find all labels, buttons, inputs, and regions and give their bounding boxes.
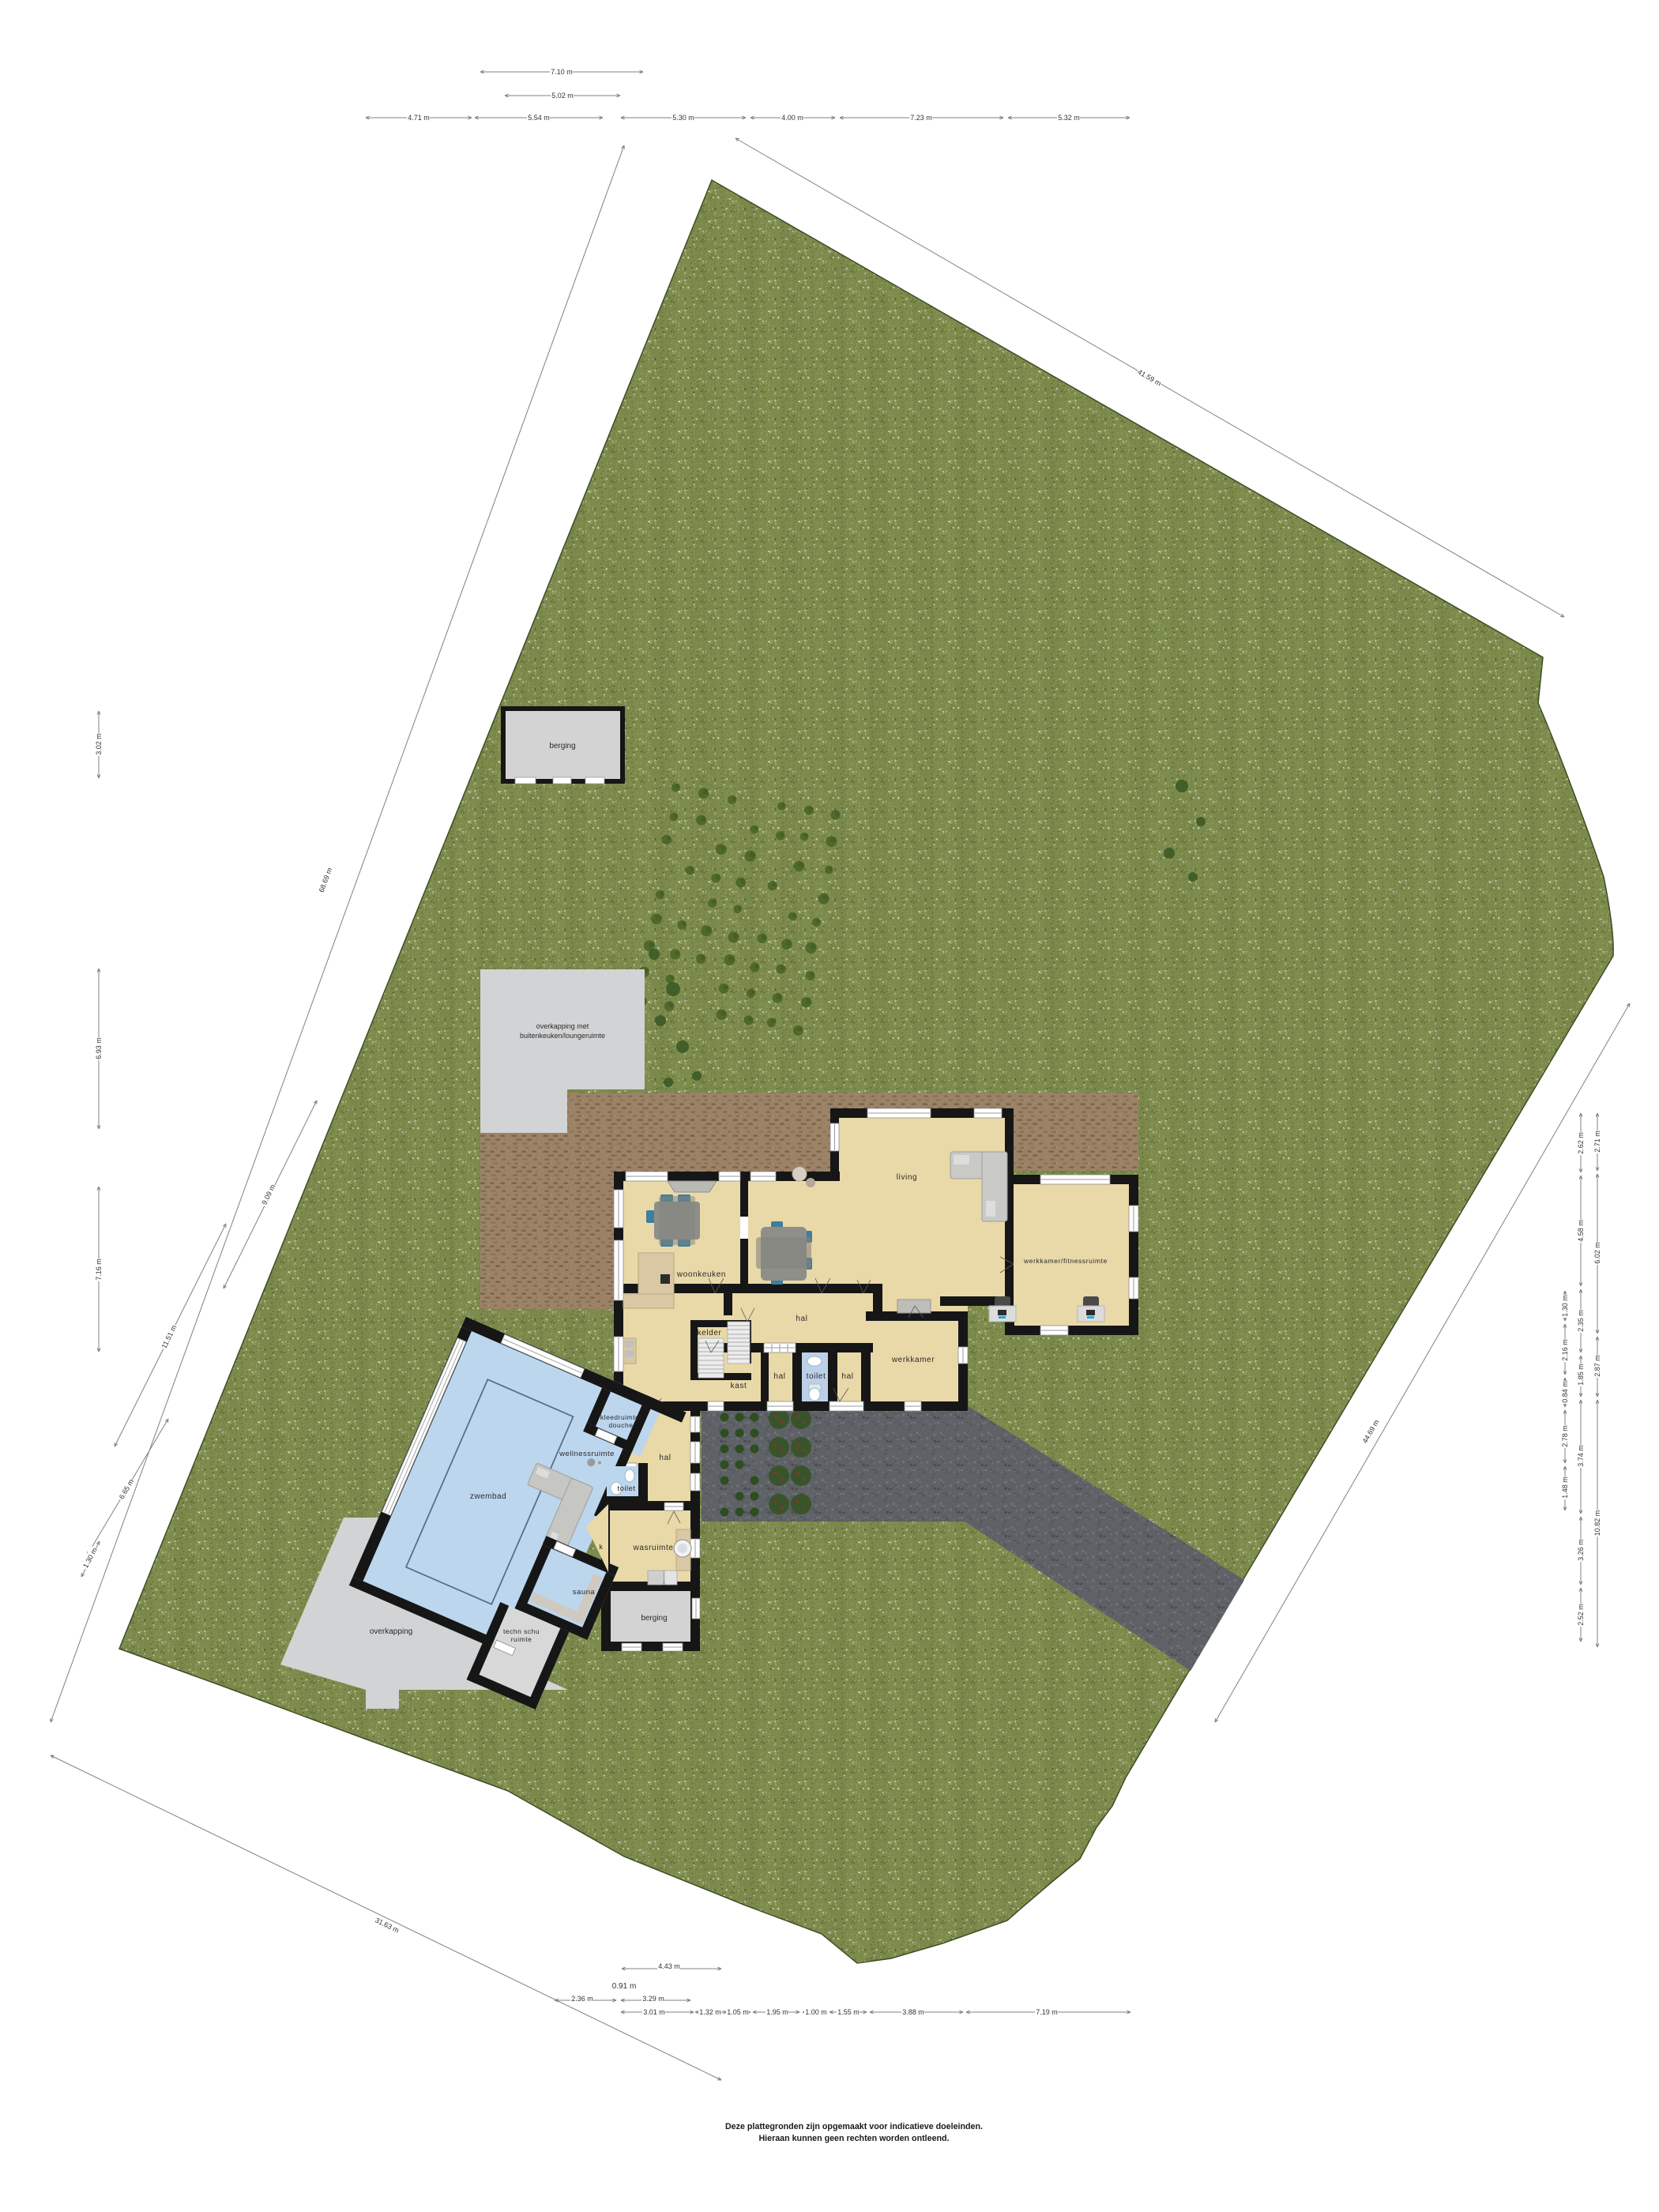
svg-text:2.78 m: 2.78 m [1561,1425,1569,1447]
svg-text:7.10 m: 7.10 m [551,68,573,76]
svg-text:7.19 m: 7.19 m [1036,2008,1058,2016]
svg-text:toilet: toilet [807,1372,826,1381]
svg-text:1.05 m: 1.05 m [727,2008,749,2016]
svg-text:hal: hal [773,1372,785,1381]
svg-text:4.00 m: 4.00 m [781,114,803,122]
svg-text:5.02 m: 5.02 m [551,92,574,100]
svg-text:kleedruimte/: kleedruimte/ [600,1413,641,1421]
svg-text:toilet: toilet [617,1484,635,1493]
svg-text:wellnessruimte: wellnessruimte [559,1450,615,1458]
svg-text:1.55 m: 1.55 m [837,2008,860,2016]
svg-text:Deze plattegronden zijn opgema: Deze plattegronden zijn opgemaakt voor i… [725,2122,983,2131]
svg-text:buitenkeuken/loungeruimte: buitenkeuken/loungeruimte [520,1032,605,1040]
svg-text:6.93 m: 6.93 m [95,1037,103,1059]
svg-text:2.71 m: 2.71 m [1593,1130,1601,1153]
svg-text:4.71 m: 4.71 m [408,114,430,122]
svg-text:3.01 m: 3.01 m [643,2008,665,2016]
svg-text:5.32 m: 5.32 m [1058,114,1080,122]
svg-text:wasruimte: wasruimte [633,1544,674,1552]
svg-text:sauna: sauna [573,1588,596,1597]
svg-text:hal: hal [659,1454,671,1462]
svg-text:1.00 m: 1.00 m [805,2008,827,2016]
svg-text:2.36 m: 2.36 m [571,1995,593,2003]
svg-text:0.84 m: 0.84 m [1561,1381,1569,1403]
svg-text:kelder: kelder [698,1329,722,1337]
svg-text:1.95 m: 1.95 m [766,2008,788,2016]
svg-text:2.35 m: 2.35 m [1577,1310,1585,1332]
svg-text:Hieraan kunnen geen rechten wo: Hieraan kunnen geen rechten worden ontle… [758,2134,949,2143]
svg-text:1.30 m: 1.30 m [1561,1295,1569,1317]
svg-text:4.43 m: 4.43 m [658,1962,680,1970]
svg-text:5.30 m: 5.30 m [672,114,694,122]
svg-text:overkapping met: overkapping met [536,1022,589,1030]
svg-text:living: living [897,1173,917,1182]
svg-text:7.16 m: 7.16 m [95,1258,103,1281]
svg-text:berging: berging [549,742,575,750]
svg-text:1.48 m: 1.48 m [1561,1477,1569,1499]
svg-text:douche: douche [609,1421,634,1429]
svg-text:6.02 m: 6.02 m [1593,1242,1601,1264]
svg-text:7.23 m: 7.23 m [910,114,932,122]
svg-text:2.16 m: 2.16 m [1561,1339,1569,1361]
svg-text:2.52 m: 2.52 m [1577,1604,1585,1626]
svg-text:3.74 m: 3.74 m [1577,1445,1585,1467]
svg-text:berging: berging [641,1614,667,1623]
svg-text:kast: kast [731,1382,747,1390]
svg-text:overkapping: overkapping [370,1627,412,1636]
svg-text:werkkamer: werkkamer [891,1356,935,1364]
svg-text:werkkamer/fitnessruimte: werkkamer/fitnessruimte [1023,1257,1108,1265]
svg-text:hal: hal [796,1315,807,1323]
svg-text:woonkeuken: woonkeuken [676,1270,726,1279]
svg-text:1.85 m: 1.85 m [1577,1364,1585,1386]
svg-text:0.91 m: 0.91 m [612,1982,637,1991]
svg-text:2.87 m: 2.87 m [1593,1355,1601,1377]
svg-text:ruimte: ruimte [511,1635,532,1643]
svg-text:5.54 m: 5.54 m [528,114,550,122]
svg-text:3.29 m: 3.29 m [642,1995,664,2003]
svg-text:3.88 m: 3.88 m [902,2008,924,2016]
svg-text:2.62 m: 2.62 m [1577,1132,1585,1154]
svg-text:techn schu: techn schu [503,1627,540,1635]
svg-text:3.26 m: 3.26 m [1577,1539,1585,1561]
svg-text:4.58 m: 4.58 m [1577,1220,1585,1242]
svg-text:10.82 m: 10.82 m [1593,1510,1601,1537]
svg-text:hal: hal [841,1372,853,1381]
svg-text:zwembad: zwembad [470,1492,506,1501]
svg-text:3.02 m: 3.02 m [95,733,103,755]
svg-text:k: k [600,1543,604,1551]
svg-text:1.32 m: 1.32 m [699,2008,721,2016]
